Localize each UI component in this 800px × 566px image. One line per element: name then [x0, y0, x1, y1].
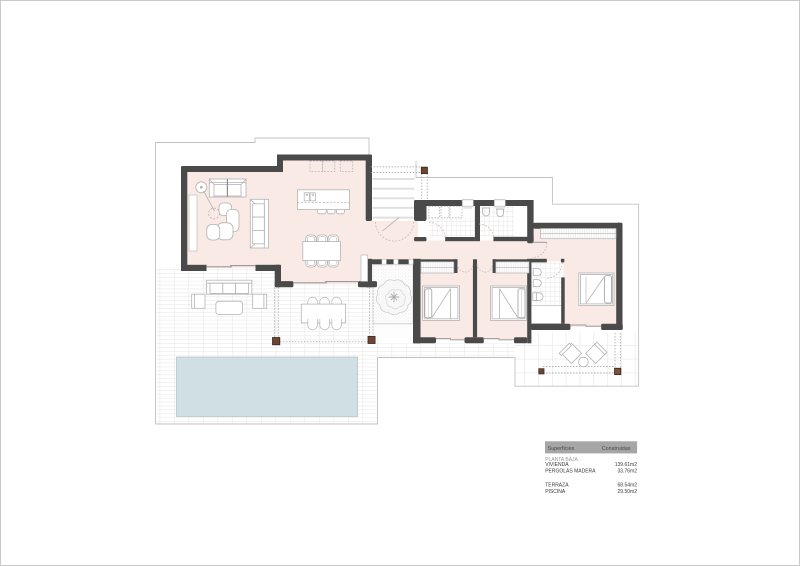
svg-text:29.50m2: 29.50m2	[618, 489, 638, 495]
svg-text:Construidas: Construidas	[602, 446, 631, 452]
svg-text:33.76m2: 33.76m2	[618, 469, 638, 475]
svg-text:139.61m2: 139.61m2	[615, 462, 637, 468]
svg-text:PERGOLAS MADERA: PERGOLAS MADERA	[545, 469, 596, 475]
svg-text:Superficies: Superficies	[548, 446, 575, 452]
svg-text:VIVIENDA: VIVIENDA	[545, 462, 569, 468]
svg-text:TERRAZA: TERRAZA	[545, 482, 569, 488]
svg-text:PISCINA: PISCINA	[545, 489, 566, 495]
svg-text:68.54m2: 68.54m2	[618, 482, 638, 488]
